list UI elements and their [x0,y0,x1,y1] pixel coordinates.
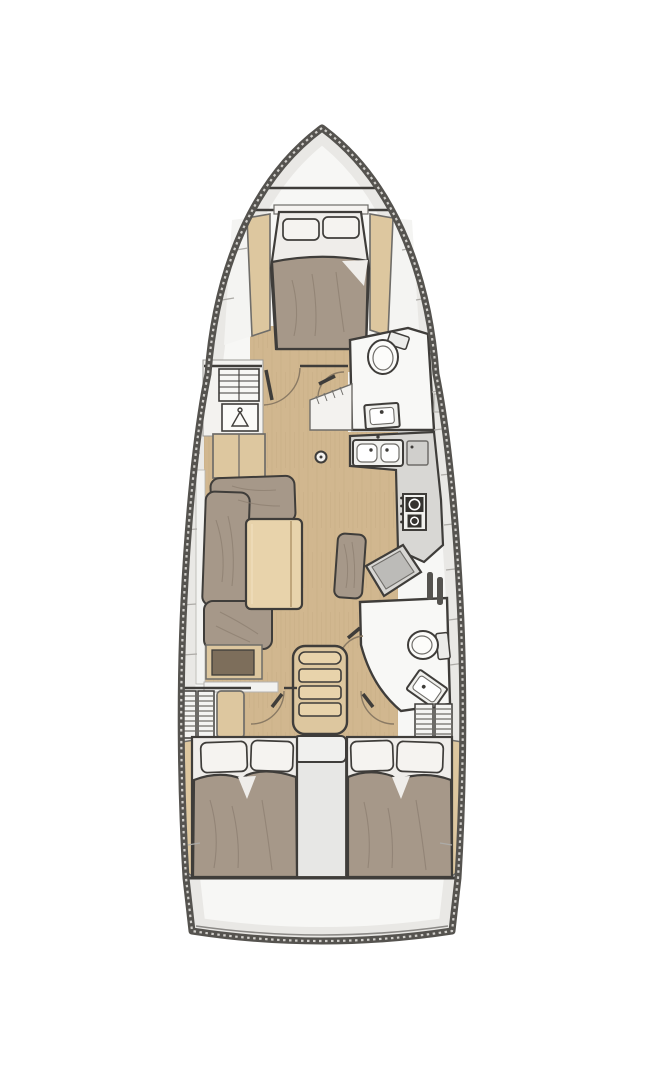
mast-post [316,452,327,463]
port-locker-unit [203,360,263,436]
starboard-aft-cabin [347,737,462,878]
pillow [200,741,247,773]
port-wardrobe [217,691,244,738]
double-sink [353,435,403,466]
refrigerator [407,441,428,465]
pillow [396,741,443,773]
sofa-end-inset [206,645,262,679]
engine-hatch [294,736,346,762]
folding-salon-table [246,519,302,609]
companionway [293,646,347,877]
boat-floor-plan-page [0,0,662,1080]
forward-owner-cabin [224,205,420,349]
pillow [250,740,293,771]
pillow [350,740,393,771]
toilet [408,631,450,660]
starboard-hull-shelf [370,214,393,336]
boat-floor-plan [0,0,662,1080]
port-aft-cabin [182,737,297,878]
washbasin [364,403,400,429]
nav-seat [334,533,366,599]
port-hull-shelf [247,214,270,336]
forward-sideboard [213,434,265,478]
pillow [323,217,359,238]
two-burner-stove [400,494,426,530]
pillow [283,219,319,240]
